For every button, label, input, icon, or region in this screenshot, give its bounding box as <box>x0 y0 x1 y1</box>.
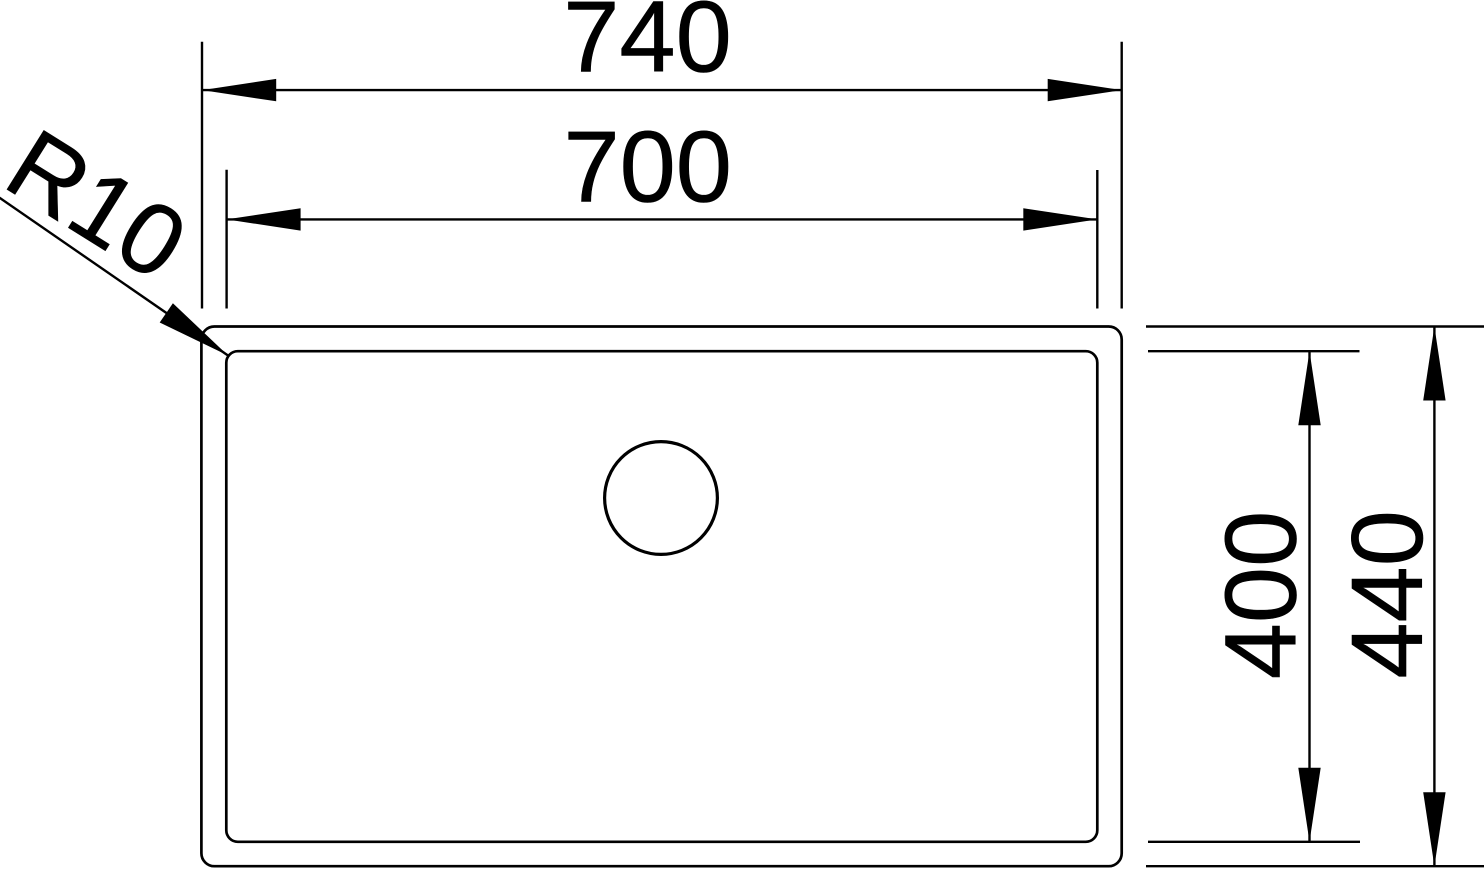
svg-text:400: 400 <box>1205 511 1317 680</box>
svg-text:740: 740 <box>563 0 732 93</box>
svg-text:700: 700 <box>563 111 732 223</box>
svg-text:440: 440 <box>1332 510 1444 679</box>
